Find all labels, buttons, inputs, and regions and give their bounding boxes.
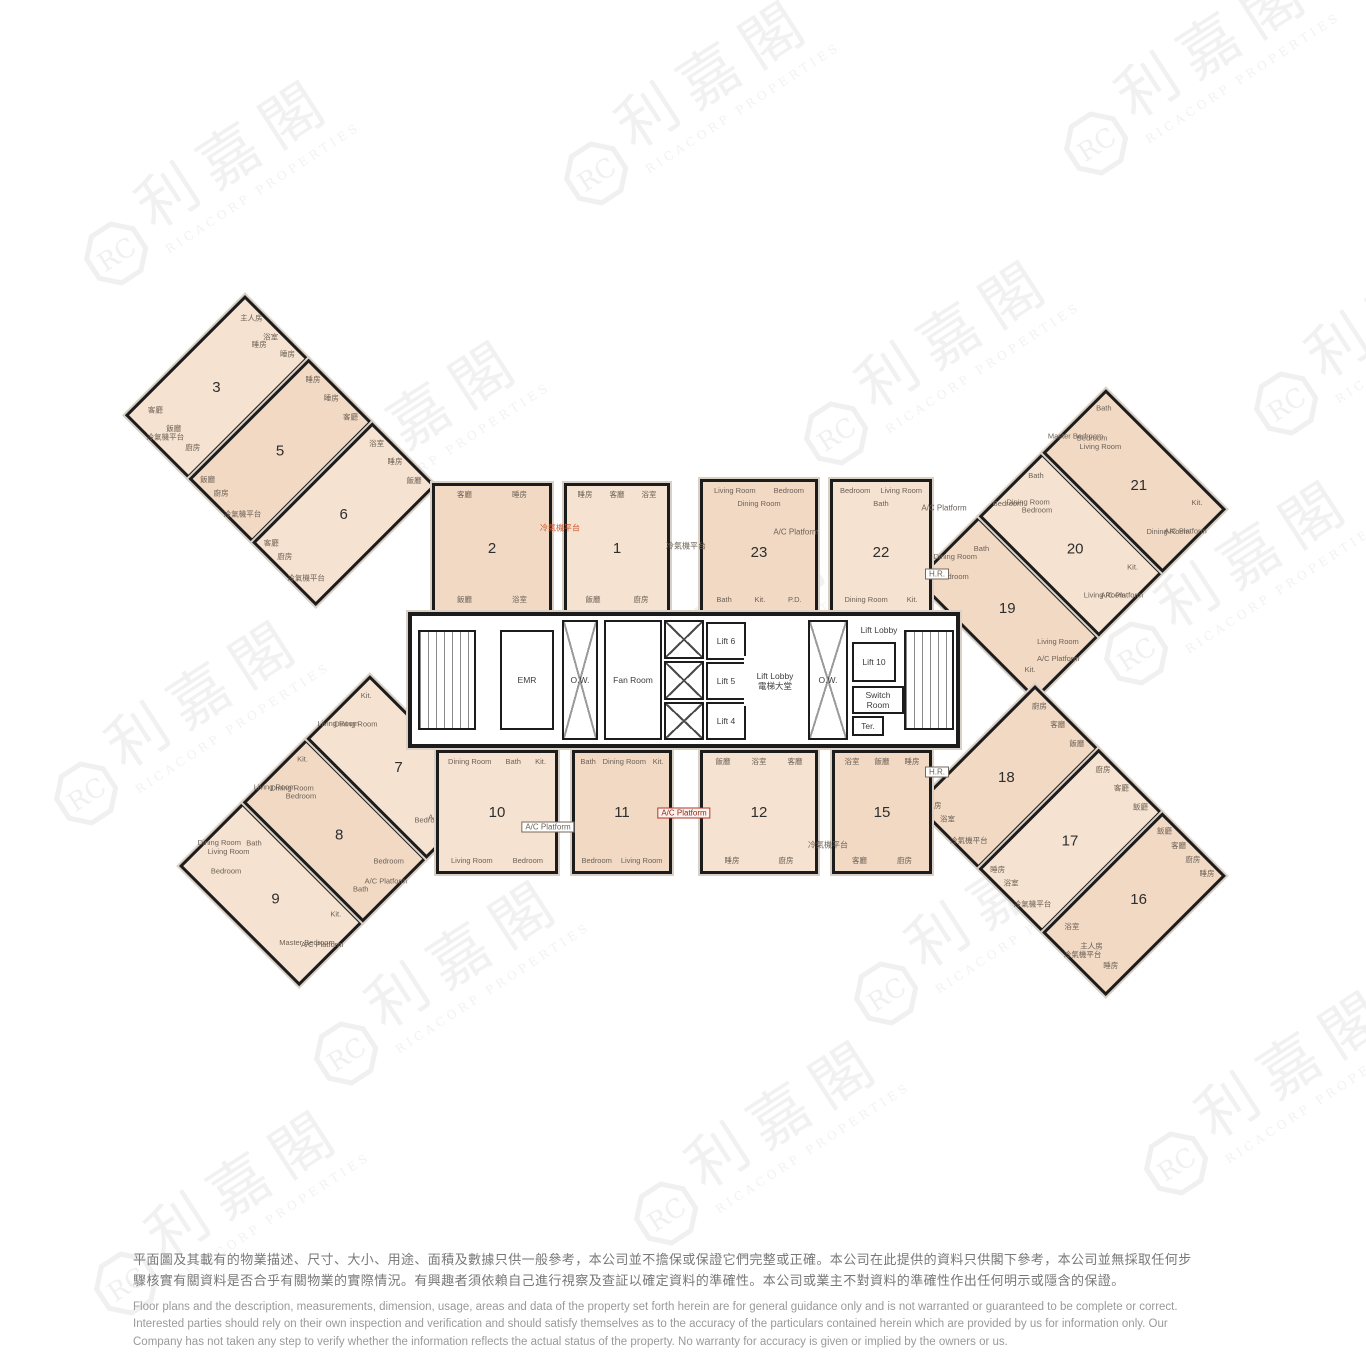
core-room-label: O.W. — [819, 675, 838, 685]
room-label: 飯廳 — [405, 477, 424, 486]
room-label: 冷氣機平台 — [145, 434, 187, 443]
room-label: 睡房 — [250, 340, 269, 349]
room-label: 飯廳 — [584, 596, 603, 605]
room-label: Bath — [871, 500, 890, 509]
unit-number: 10 — [441, 804, 553, 821]
unit-rooms-top: 飯廳浴室客廳 — [705, 758, 813, 767]
unit-rooms-top: BathDining RoomKit. — [577, 758, 667, 767]
core-room-label: Ter. — [861, 721, 875, 731]
room-label: 睡房 — [1102, 962, 1121, 971]
core-room-ow-2: O.W. — [808, 620, 848, 740]
unit-rooms-top: Dining RoomBathKit. — [441, 758, 553, 767]
room-label: 客廳 — [786, 758, 805, 767]
room-label: 睡房 — [278, 351, 297, 360]
core-room-ter: Ter. — [852, 716, 884, 736]
core-room-label: Lift 6 — [717, 636, 735, 646]
ac-platform-label: H.R. — [925, 569, 949, 580]
room-label: Bath — [972, 545, 991, 554]
unit-rooms-top: BedroomBathDining RoomBedroom — [988, 462, 1069, 543]
unit-23: Living RoomBedroomDining Room23BathKit.P… — [700, 479, 818, 613]
room-label: 客廳 — [1112, 785, 1131, 794]
room-label: 飯廳 — [198, 476, 217, 485]
unit-rooms-bottom: BathBedroomA/C Platform — [346, 842, 418, 914]
room-label: 睡房 — [303, 376, 322, 385]
room-label: Bath — [504, 758, 523, 767]
floor-plan-page: RC利嘉閣RICACORP PROPERTIESRC利嘉閣RICACORP PR… — [0, 0, 1366, 1366]
core-room-label: Lift Lobby — [861, 625, 898, 635]
ac-platform-label: A/C Platform — [773, 528, 818, 537]
room-label: Kit. — [359, 692, 374, 701]
unit-rooms-top: 廚房客廳飯廳 — [1027, 694, 1090, 757]
unit-2: 客廳睡房2飯廳浴室 — [432, 483, 552, 613]
wing-units-19-20-21: Dining RoomBedroomBath19Kit.Living RoomA… — [915, 389, 1226, 700]
unit-number: 20 — [1035, 541, 1115, 558]
unit-rooms-bottom: Dining RoomKit.A/C Platform — [1145, 492, 1217, 564]
core-room-lift-4: Lift 4 — [706, 702, 746, 740]
room-label: Living Room — [712, 487, 758, 496]
room-label: 浴室 — [938, 816, 957, 825]
wing-units-3-5-6: 主人房浴室睡房睡房3客廳飯廳廚房冷氣機平台睡房睡房客廳5飯廳廚房冷氣機平台浴室睡… — [125, 295, 436, 606]
core-room-lift-5: Lift 5 — [706, 662, 746, 700]
room-label: Bedroom — [772, 487, 806, 496]
unit-number: 17 — [1030, 832, 1110, 849]
unit-rooms-top: 飯廳客廳廚房睡房 — [1154, 821, 1217, 884]
ac-platform-label: A/C Platform — [657, 808, 710, 819]
room-label: 廚房 — [632, 596, 651, 605]
unit-rooms-bottom: BathKit.P.D. — [705, 596, 813, 605]
unit-1: 睡房客廳浴室1飯廳廚房 — [564, 483, 670, 613]
room-label: Dining Room — [842, 596, 889, 605]
unit-number: 15 — [837, 804, 927, 821]
core-room-label: Switch Room — [854, 690, 902, 710]
room-label: 廚房 — [1093, 766, 1112, 775]
core-room-shaft-2 — [664, 661, 704, 700]
core-room-switch-room: Switch Room — [852, 686, 904, 714]
room-label: Kit. — [651, 758, 666, 767]
room-label: 飯廳 — [714, 758, 733, 767]
core-room-label: EMR — [518, 675, 537, 685]
unit-number: 11 — [577, 804, 667, 821]
room-label: Living Room — [1078, 443, 1124, 452]
room-label: Dining Room — [932, 553, 979, 562]
room-label: 浴室 — [1062, 923, 1081, 932]
room-label: 客廳 — [341, 414, 360, 423]
core-room-label: Lift Lobby — [757, 671, 794, 681]
room-label: 浴室 — [750, 758, 769, 767]
room-label: 睡房 — [322, 395, 341, 404]
unit-rooms-bottom: 客廳廚房 — [837, 857, 927, 866]
core-room-lobby-main: Lift Lobby電梯大堂 — [744, 656, 806, 706]
room-label: Living Room — [878, 487, 924, 496]
room-label: 飯廳 — [1155, 827, 1174, 836]
ac-platform-label: A/C Platform — [521, 822, 574, 833]
core-room-lobby-2: Lift Lobby — [850, 622, 908, 638]
room-label: 廚房 — [275, 553, 294, 562]
room-label: Kit. — [752, 596, 767, 605]
core-room-label: Fan Room — [613, 675, 653, 685]
unit-rooms-top: Living RoomKit.Dining Room — [315, 684, 387, 756]
room-label: A/C Platform — [1162, 528, 1209, 537]
unit-number: 19 — [967, 600, 1047, 617]
unit-number: 3 — [177, 378, 257, 395]
room-label: 冷氣機平台 — [285, 575, 327, 584]
room-label: 睡房 — [510, 491, 529, 500]
room-label: Bedroom — [209, 868, 243, 877]
room-label: 客廳 — [1049, 721, 1068, 730]
unit-rooms-top: Dining RoomBedroomBath — [924, 526, 996, 598]
room-label: 飯廳 — [455, 596, 474, 605]
unit-rooms-top: 浴室睡房飯廳 — [364, 431, 427, 494]
room-label: A/C Platform — [1035, 655, 1082, 664]
room-label: 飯廳 — [873, 758, 892, 767]
room-label: 冷氣機平台 — [1012, 901, 1053, 910]
room-label: 冷氣機平台 — [222, 511, 263, 520]
room-label: 睡房 — [903, 758, 922, 767]
room-label: 睡房 — [723, 857, 742, 866]
room-label: Dining Room — [446, 758, 493, 767]
room-label: 廚房 — [211, 490, 230, 499]
disclaimer-en-line-3: Company has not taken any step to verify… — [133, 1334, 1241, 1351]
room-label: Kit. — [1125, 563, 1140, 572]
room-label: 浴室 — [510, 596, 529, 605]
room-label: 客廳 — [608, 491, 627, 500]
ac-platform-label: A/C Platform — [921, 504, 966, 513]
core-room-stair-left — [418, 630, 476, 730]
unit-number: 7 — [358, 759, 438, 776]
unit-number: 16 — [1098, 891, 1178, 908]
unit-rooms-bottom: 睡房廚房 — [705, 857, 813, 866]
room-label: Bath — [1094, 404, 1113, 413]
room-label: 浴室 — [843, 758, 862, 767]
core-room-label: O.W. — [571, 675, 590, 685]
unit-rooms-bottom: Living RoomBedroom — [441, 857, 553, 866]
unit-number: 6 — [304, 506, 384, 523]
room-label: 飯廳 — [1067, 740, 1086, 749]
unit-12: 飯廳浴室客廳12睡房廚房 — [700, 750, 818, 874]
unit-rooms-bottom: Kit.Living RoomA/C Platform — [1018, 619, 1090, 691]
room-label: Kit. — [328, 910, 343, 919]
unit-rooms-top: 睡房睡房客廳 — [300, 368, 363, 431]
unit-rooms-top: Master BedroomBathBedroomLiving Room — [1051, 398, 1132, 479]
room-label: Kit. — [905, 596, 920, 605]
unit-rooms-bottom: Master BedroomKit.A/C Platform — [282, 905, 354, 977]
room-label: Bedroom — [371, 857, 405, 866]
room-label: Bath — [578, 758, 597, 767]
unit-rooms-top: 客廳睡房 — [437, 491, 547, 500]
unit-number: 9 — [235, 890, 315, 907]
unit-22: BedroomLiving RoomBath22Dining RoomKit. — [830, 479, 932, 613]
unit-rooms-top: 主人房浴室睡房睡房 — [228, 304, 300, 376]
unit-rooms-bottom: 客廳廚房冷氣機平台 — [261, 534, 324, 597]
room-label: 客廳 — [455, 491, 474, 500]
room-label: Bedroom — [579, 857, 613, 866]
room-label: 主人房 — [238, 314, 265, 323]
room-label: 廚房 — [1183, 856, 1202, 865]
core-room-emr: EMR — [500, 630, 554, 730]
core-room-label: Lift 4 — [717, 716, 735, 726]
unit-number: 5 — [240, 442, 320, 459]
room-label: 廚房 — [895, 857, 914, 866]
ac-platform-label: 冷氣機平台 — [808, 840, 848, 851]
room-label: 睡房 — [1197, 870, 1216, 879]
ac-platform-label: 冷氣機平台 — [540, 523, 580, 534]
room-label: 冷氣機平台 — [948, 838, 990, 847]
core-room-ow-1: O.W. — [562, 620, 598, 740]
room-label: 客廳 — [262, 540, 281, 549]
core-room-label-zh: 電梯大堂 — [758, 681, 792, 691]
core-room-shaft-1 — [664, 620, 704, 659]
room-label: 睡房 — [386, 458, 405, 467]
room-label: Bedroom — [838, 487, 872, 496]
unit-rooms-bottom: 飯廳廚房 — [569, 596, 665, 605]
room-label: 睡房 — [988, 866, 1007, 875]
room-label: Bath — [351, 886, 370, 895]
room-label: 廚房 — [1030, 702, 1049, 711]
unit-15: 浴室飯廳睡房15客廳廚房 — [832, 750, 932, 874]
unit-rooms-bottom: 浴室主人房睡房冷氣機平台 — [1051, 915, 1123, 987]
room-label: A/C Platform — [1099, 592, 1146, 601]
unit-rooms-bottom: 飯廳浴室 — [437, 596, 547, 605]
disclaimer-zh-line-2: 驟核實有關資料是否合乎有關物業的實際情況。有興趣者須依賴自己進行視察及查証以確定… — [133, 1271, 1241, 1292]
unit-rooms-top: 廚房客廳飯廳 — [1090, 758, 1153, 821]
unit-rooms-top: BedroomLiving RoomBath — [835, 487, 927, 508]
ac-platform-label: 冷氣機平台 — [666, 541, 706, 552]
room-label: 飯廳 — [1131, 804, 1150, 813]
room-label: Bedroom — [1020, 507, 1054, 516]
unit-rooms-bottom: 睡房浴室冷氣機平台 — [924, 797, 987, 860]
unit-rooms-top: 睡房客廳浴室 — [569, 491, 665, 500]
room-label: Bath — [244, 840, 263, 849]
room-label: 浴室 — [367, 440, 386, 449]
unit-10: Dining RoomBathKit.10Living RoomBedroom — [436, 750, 558, 874]
room-label: Living Room — [1035, 638, 1081, 647]
unit-rooms-bottom: 飯廳廚房冷氣機平台 — [198, 471, 261, 534]
ac-platform-label: H.R. — [925, 767, 949, 778]
unit-rooms-bottom: 睡房浴室冷氣機平台 — [988, 861, 1051, 924]
unit-rooms-bottom: BedroomLiving Room — [577, 857, 667, 866]
unit-number: 8 — [299, 827, 379, 844]
unit-rooms-bottom: Dining RoomKit. — [835, 596, 927, 605]
unit-number: 23 — [705, 544, 813, 561]
floor-plan: 主人房浴室睡房睡房3客廳飯廳廚房冷氣機平台睡房睡房客廳5飯廳廚房冷氣機平台浴室睡… — [0, 0, 1366, 1366]
unit-number: 12 — [705, 804, 813, 821]
core-room-stair-right — [904, 630, 954, 730]
room-label: Dining Room — [332, 720, 379, 729]
room-label: Dining Room — [735, 500, 782, 509]
core-room-lift-10: Lift 10 — [852, 642, 896, 682]
unit-rooms-top: Living RoomKit.Dining RoomBedroom — [252, 748, 333, 829]
disclaimer-en-line-2: Interested parties should rely on their … — [133, 1316, 1241, 1333]
room-label: Bath — [714, 596, 733, 605]
room-label: 廚房 — [184, 444, 203, 453]
room-label: Kit. — [533, 758, 548, 767]
room-label: 客廳 — [146, 406, 165, 415]
unit-rooms-top: 浴室飯廳睡房 — [837, 758, 927, 767]
room-label: Dining Room — [601, 758, 648, 767]
room-label: 冷氣機平台 — [1062, 951, 1104, 960]
room-label: 睡房 — [576, 491, 595, 500]
room-label: A/C Platform — [299, 941, 346, 950]
core-room-shaft-3 — [664, 702, 704, 740]
room-label: Living Room — [449, 857, 495, 866]
room-label: Bath — [1026, 472, 1045, 481]
disclaimer-en-line-1: Floor plans and the description, measure… — [133, 1299, 1241, 1316]
core-room-label: Lift 10 — [862, 657, 885, 667]
unit-number: 18 — [967, 768, 1047, 785]
disclaimer-zh-line-1: 平面圖及其載有的物業描述、尺寸、大小、用途、面積及數據只供一般參考，本公司並不擔… — [133, 1250, 1241, 1271]
unit-number: 22 — [835, 544, 927, 561]
unit-rooms-bottom: 客廳飯廳廚房冷氣機平台 — [134, 398, 206, 470]
unit-number: 21 — [1099, 477, 1179, 494]
unit-number: 1 — [569, 540, 665, 557]
wing-units-18-17-16: 廚房客廳飯廳18睡房浴室冷氣機平台廚房客廳飯廳17睡房浴室冷氣機平台飯廳客廳廚房… — [915, 685, 1226, 996]
lift-core: EMRO.W.Fan RoomLift 6Lift 5Lift 4Lift Lo… — [408, 612, 960, 748]
core-room-fan-room: Fan Room — [604, 620, 662, 740]
room-label: 浴室 — [640, 491, 659, 500]
room-label: 客廳 — [850, 857, 869, 866]
unit-rooms-bottom: Living RoomKit.A/C Platform — [1082, 556, 1154, 628]
room-label: A/C Platform — [363, 878, 410, 887]
unit-rooms-top: Living RoomBedroomDining Room — [705, 487, 813, 508]
core-room-label: Lift 5 — [717, 676, 735, 686]
room-label: Kit. — [295, 755, 310, 764]
room-label: P.D. — [786, 596, 804, 605]
room-label: Kit. — [1189, 499, 1204, 508]
room-label: 客廳 — [1169, 841, 1188, 850]
room-label: Kit. — [1022, 666, 1037, 675]
room-label: 廚房 — [777, 857, 796, 866]
disclaimer: 平面圖及其載有的物業描述、尺寸、大小、用途、面積及數據只供一般參考，本公司並不擔… — [133, 1250, 1241, 1351]
room-label: Living Room — [206, 848, 252, 857]
room-label: 浴室 — [1001, 880, 1020, 889]
room-label: Living Room — [619, 857, 665, 866]
unit-number: 2 — [437, 540, 547, 557]
room-label: Bedroom — [284, 793, 318, 802]
core-room-lift-6: Lift 6 — [706, 622, 746, 660]
room-label: Bedroom — [511, 857, 545, 866]
unit-rooms-top: Dining RoomLiving RoomBedroomBath — [188, 812, 269, 893]
